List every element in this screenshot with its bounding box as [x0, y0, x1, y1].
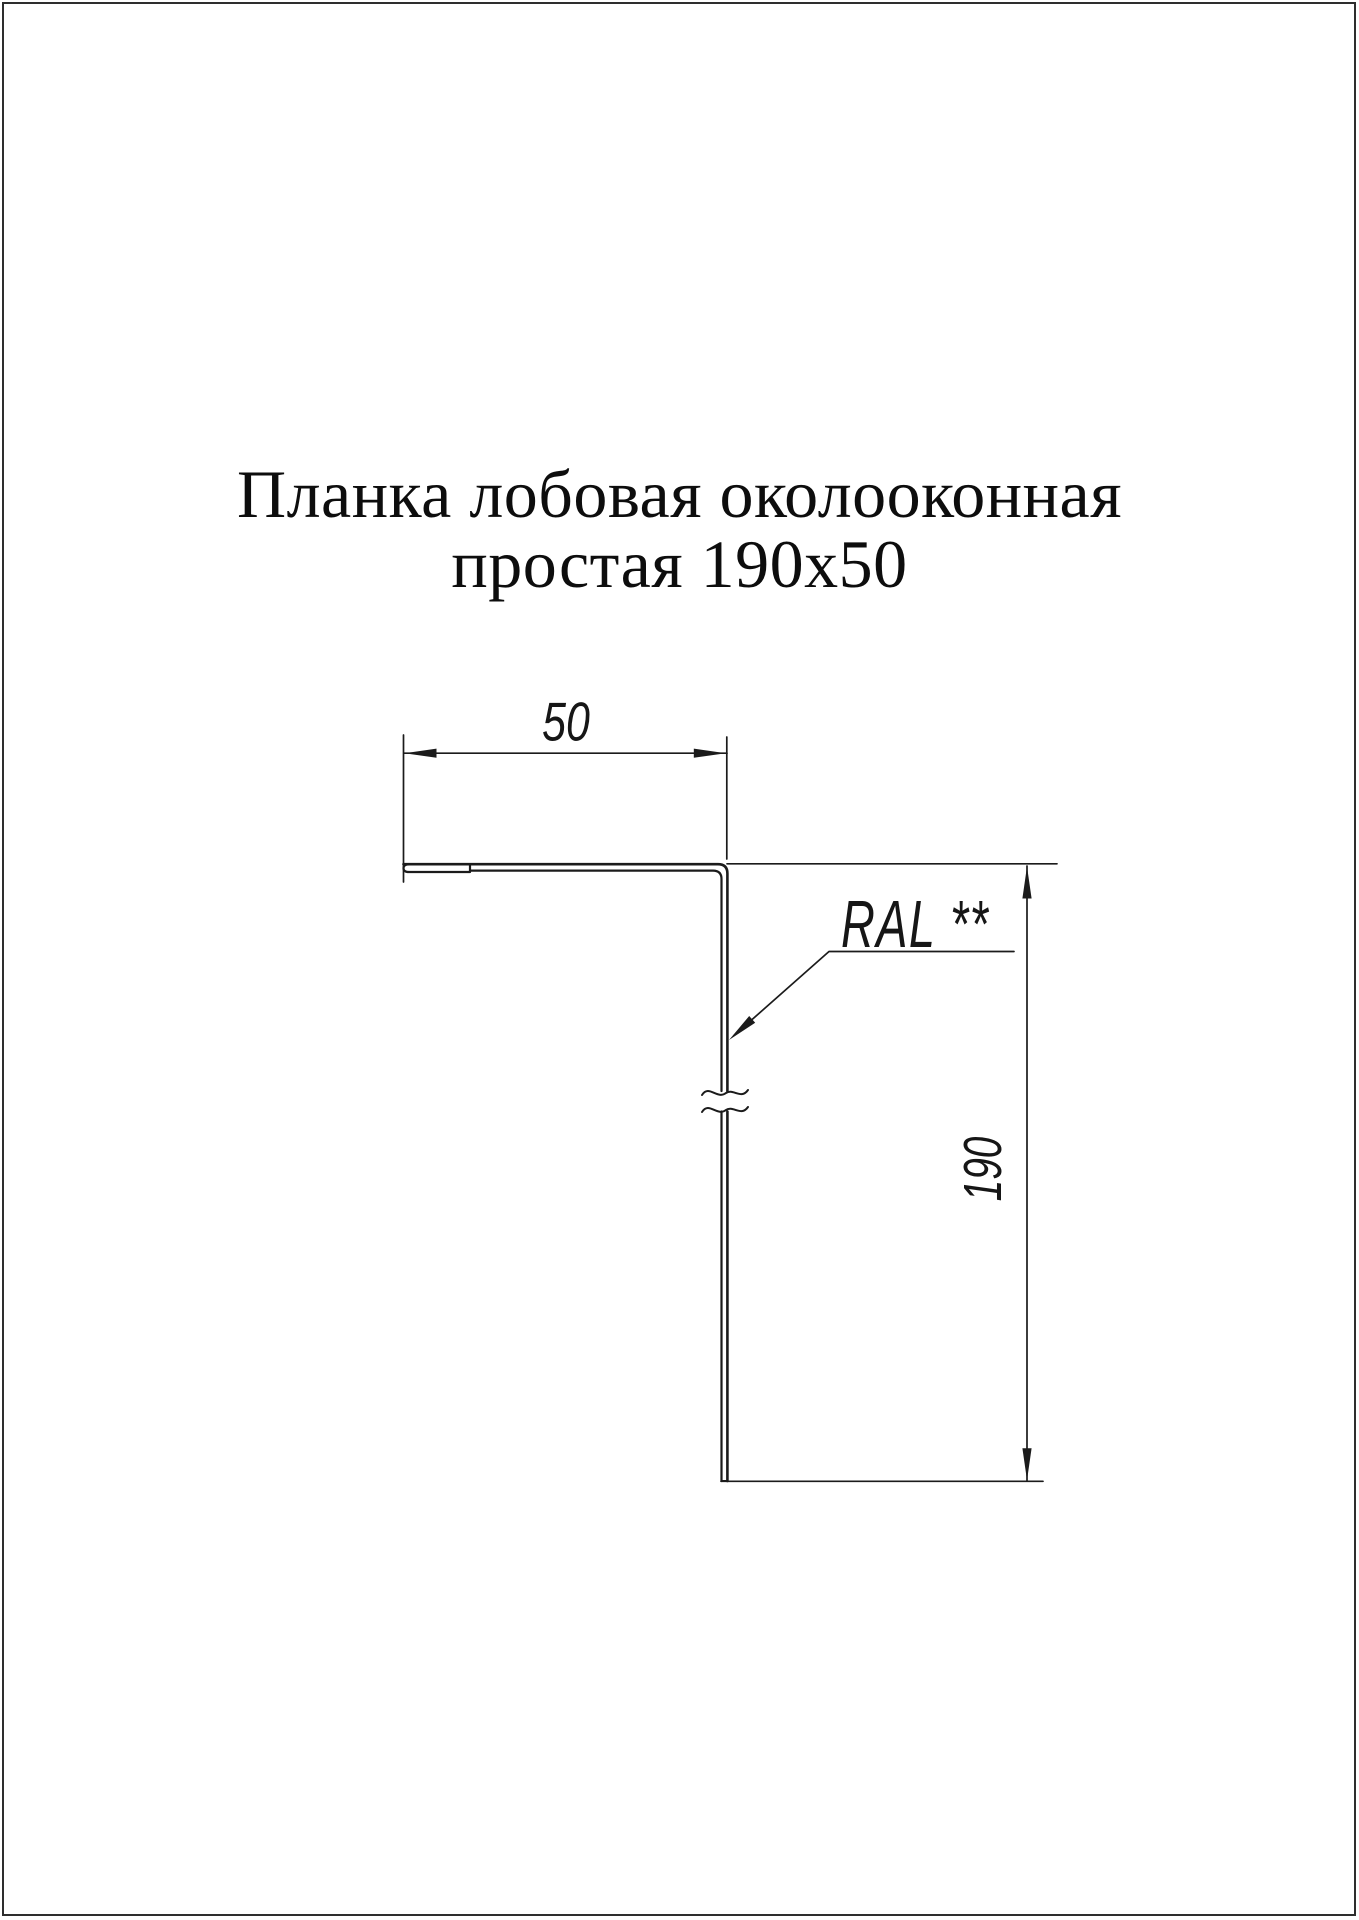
ral-label: RAL **	[841, 888, 990, 962]
arrowhead-right	[694, 749, 726, 758]
ral-callout: RAL **	[729, 888, 1014, 1040]
dim-width-value: 50	[542, 691, 590, 752]
leader-shelf-line	[734, 952, 1014, 1036]
leader-arrowhead	[729, 1016, 755, 1040]
arrowhead-top	[1022, 867, 1031, 899]
drawing-sheet: { "title": { "line1": "Планка лобовая ок…	[0, 0, 1359, 1920]
dim-height-value: 190	[952, 1137, 1013, 1202]
profile-outer-face	[404, 864, 728, 1091]
arrowhead-left	[405, 749, 437, 758]
profile-hem-fold	[404, 864, 471, 872]
arrowhead-bottom	[1022, 1448, 1031, 1480]
profile-inner-face	[470, 871, 722, 1091]
break-symbol	[702, 1090, 748, 1112]
dimension-width: 50	[404, 691, 728, 882]
profile-outline	[404, 864, 728, 1481]
break-wave-bottom	[702, 1107, 748, 1112]
profile-drawing: 50 190 RAL **	[0, 0, 1359, 1920]
break-wave-top	[702, 1090, 748, 1095]
